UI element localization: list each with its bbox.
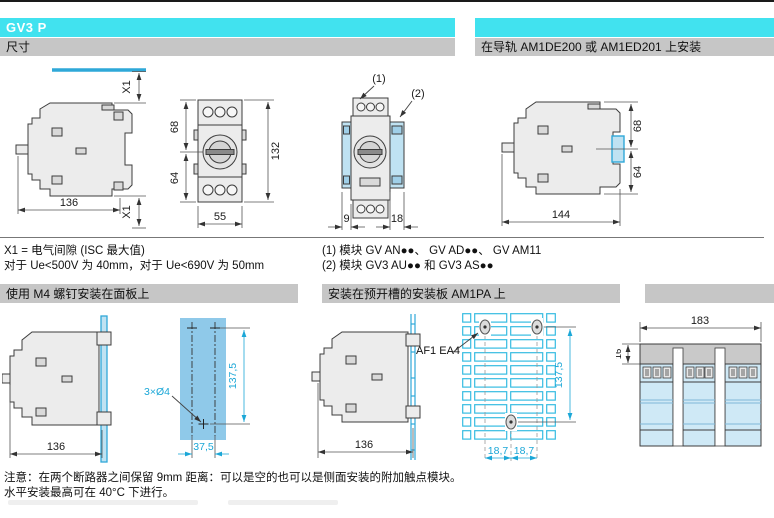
rail-side-view-drawing: 68 64 144	[478, 80, 650, 238]
x1-values-note: 对于 Ue<500V 为 40mm，对于 Ue<690V 为 50mm	[4, 257, 264, 273]
dim-3xO4: 3×Ø4	[144, 386, 170, 398]
section-header-panel-mounting: 使用 M4 螺钉安装在面板上	[0, 284, 298, 303]
catalog-page: GV3 P 尺寸 在导轨 AM1DE200 或 AM1ED201 上安装	[0, 0, 774, 518]
dim-183: 183	[691, 315, 709, 327]
dim-x1-bottom: X1	[121, 205, 133, 218]
modules-view-drawing: (1) (2) 9 18	[322, 70, 470, 238]
terminal-clamps	[643, 367, 757, 378]
x1-definition-note: X1 = 电气间隙 (ISC 最大值)	[4, 242, 145, 258]
dim-9: 9	[343, 213, 349, 225]
breaker-side-profile-rail	[502, 102, 620, 194]
module-note-2: (2) 模块 GV3 AU●● 和 GV3 AS●●	[322, 257, 494, 273]
dim-68: 68	[169, 121, 181, 133]
dim-132: 132	[270, 142, 282, 160]
dim-136-slotted: 136	[355, 439, 373, 451]
dim-64: 64	[169, 172, 181, 184]
section-header-rail-mounting: 在导轨 AM1DE200 或 AM1ED201 上安装	[475, 38, 774, 56]
breaker-side-profile-panel	[2, 332, 111, 425]
panel-side-view-drawing: 136	[2, 312, 134, 467]
dim-137-5-plate: 137,5	[553, 362, 565, 388]
caution-note-line2: 水平安装最高可在 40°C 下进行。	[4, 484, 174, 500]
breaker-side-profile-slotted	[312, 332, 420, 422]
section-divider-rule	[0, 237, 764, 238]
footer-print-artifact	[228, 500, 338, 505]
group-top-view-drawing: 183 16	[616, 312, 774, 452]
caution-note-line1: 注意：在两个断路器之间保留 9mm 距离：可以是空的也可以是侧面安装的附加触点模…	[4, 469, 461, 485]
section-header-panel-mounting-label: 使用 M4 螺钉安装在面板上	[0, 287, 149, 301]
section-header-dimensions-label: 尺寸	[0, 40, 30, 54]
section-header-blank	[645, 284, 774, 303]
dim-18-7-right: 18,7	[514, 445, 535, 457]
section-header-dimensions: 尺寸	[0, 38, 455, 56]
dim-16: 16	[616, 349, 624, 360]
mounting-bar	[640, 344, 761, 364]
dim-68-rail: 68	[632, 120, 644, 132]
breaker-center-body	[351, 98, 390, 218]
breaker-side-profile	[16, 103, 132, 196]
dim-144: 144	[552, 209, 570, 221]
dim-137-5-template: 137,5	[227, 363, 239, 389]
rotary-knob-handle	[206, 150, 234, 155]
slotted-plate-side-view-drawing: 136	[300, 312, 450, 462]
dim-136-panel: 136	[47, 441, 65, 453]
section-header-rail-mounting-label: 在导轨 AM1DE200 或 AM1ED201 上安装	[475, 40, 701, 54]
footer-print-artifact	[8, 500, 198, 505]
product-title-banner: GV3 P	[0, 18, 455, 37]
dim-37-5-template: 37,5	[193, 441, 214, 453]
dim-55: 55	[214, 211, 226, 223]
section-header-plate-mounting-label: 安装在预开槽的安装板 AM1PA 上	[322, 287, 506, 301]
page-title: GV3 P	[0, 20, 47, 35]
section-header-plate-mounting: 安装在预开槽的安装板 AM1PA 上	[322, 284, 620, 303]
product-title-banner-right	[475, 18, 774, 37]
dim-64-rail: 64	[632, 166, 644, 178]
page-top-rule	[0, 0, 774, 2]
dim-136: 136	[60, 197, 78, 209]
dim-18-7-left: 18,7	[488, 445, 509, 457]
dim-18: 18	[391, 213, 403, 225]
front-view-drawing: 68 64 132 55	[158, 80, 306, 238]
breaker-front-body	[194, 100, 246, 202]
dim-x1-top: X1	[121, 80, 133, 93]
callout-1: (1)	[372, 73, 385, 85]
drill-template-drawing: 3×Ø4 137,5 37,5	[138, 312, 276, 470]
side-view-drawing: X1 X1 136	[2, 62, 154, 237]
callout-2: (2)	[411, 88, 424, 100]
perforated-plate-drawing: 137,5 18,7 18,7	[448, 305, 588, 477]
module-note-1: (1) 模块 GV AN●●、 GV AD●●、 GV AM11	[322, 242, 541, 258]
